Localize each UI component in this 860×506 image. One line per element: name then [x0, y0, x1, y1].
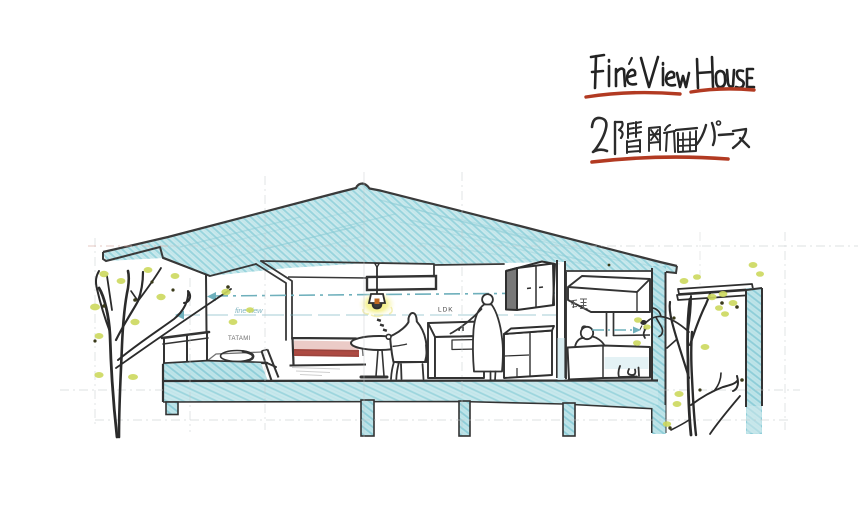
svg-text:LDK: LDK [438, 307, 454, 314]
svg-text:TATAMI: TATAMI [228, 336, 250, 342]
